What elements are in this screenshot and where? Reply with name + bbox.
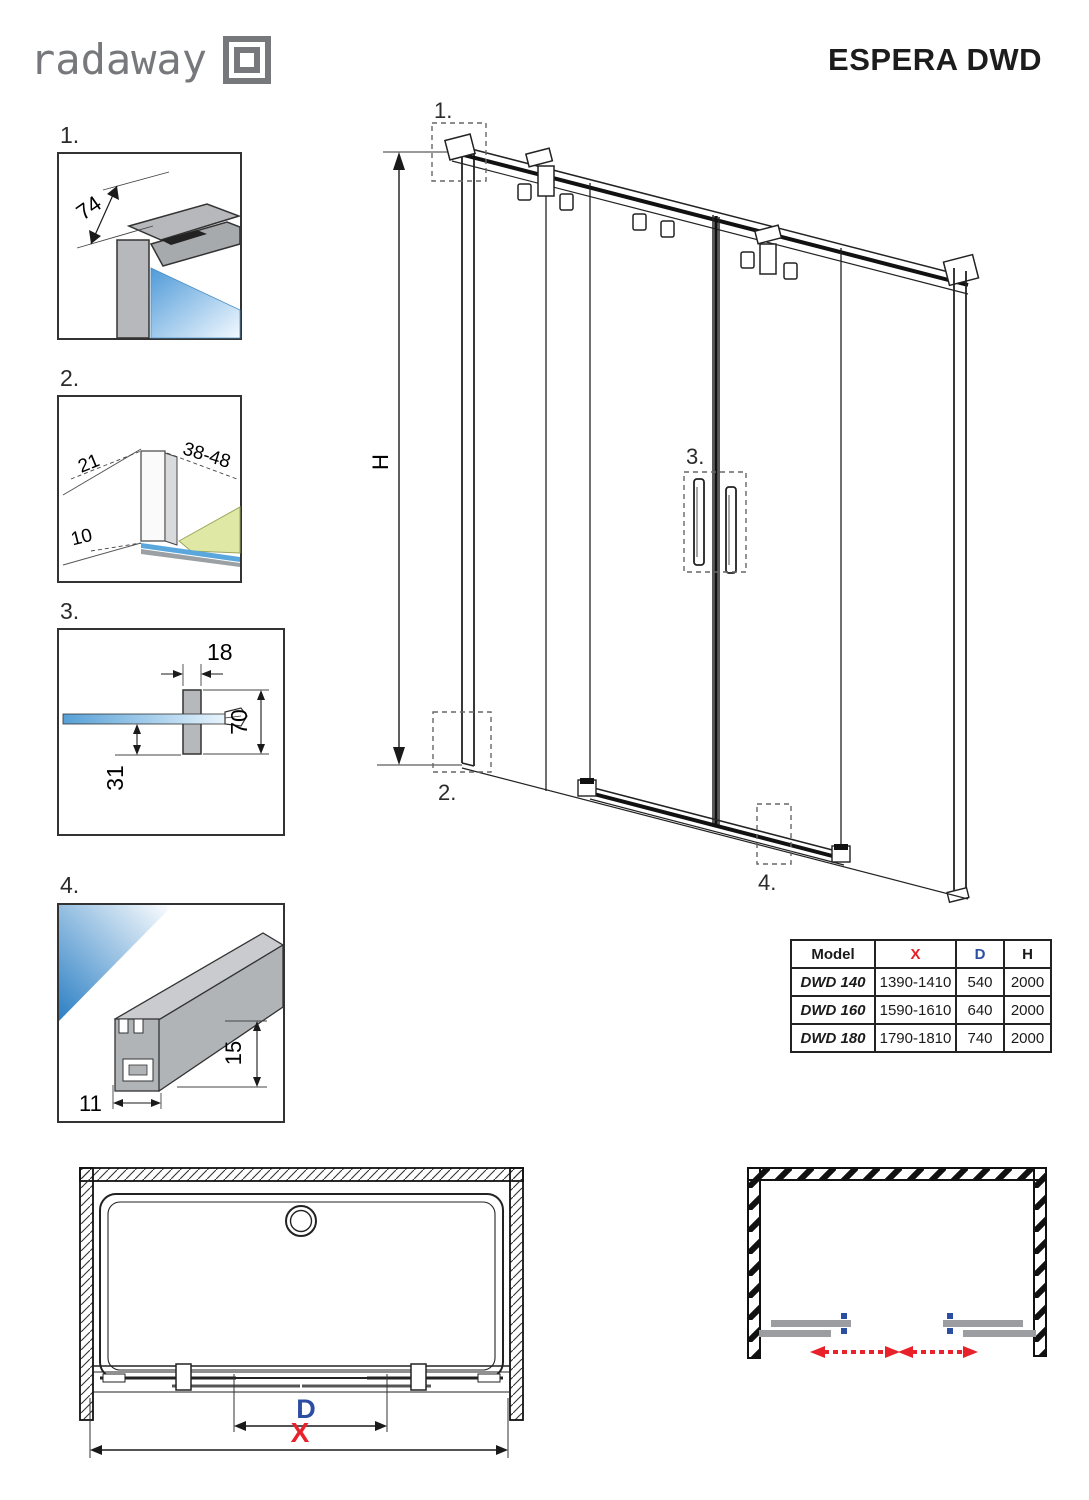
rail-end-cap-right (943, 255, 978, 286)
table-row: DWD 160 1590-1610 640 2000 (791, 996, 1051, 1024)
cell-x: 1590-1610 (875, 996, 956, 1024)
handle-markers (841, 1313, 953, 1334)
cell-d: 540 (956, 968, 1004, 996)
callout-3-label: 3. (686, 444, 704, 469)
callout-2-label: 2. (438, 780, 456, 805)
callout-4-label: 4. (758, 870, 776, 895)
sliding-schematic (735, 1150, 1055, 1380)
wall-top (748, 1168, 1046, 1180)
detail-3-label: 3. (60, 598, 79, 625)
detail-3-handle-section: 18 70 31 (57, 628, 285, 836)
cell-x: 1790-1810 (875, 1024, 956, 1052)
cell-h: 2000 (1004, 996, 1051, 1024)
shower-tray (100, 1194, 503, 1378)
dim-11: 11 (79, 1091, 102, 1116)
brand-logo: radaway (30, 36, 271, 84)
detail-4-bottom-rail-section: 11 15 (57, 903, 285, 1123)
wall-profile-front (141, 451, 165, 541)
callout-box-4 (757, 804, 791, 864)
col-header-h: H (1004, 940, 1051, 968)
dim-70: 70 (226, 709, 252, 735)
detail-4-label: 4. (60, 872, 79, 899)
brand-logo-text: radaway (30, 39, 207, 81)
brand-logo-square-icon (223, 36, 271, 84)
wall-left (748, 1168, 760, 1358)
dim-18: 18 (207, 639, 233, 665)
dim-h: H (370, 454, 393, 470)
model-spec-table: Model X D H DWD 140 1390-1410 540 2000 D… (790, 939, 1052, 1053)
wall-right (510, 1168, 523, 1420)
slide-direction-arrows (810, 1346, 978, 1358)
glass-pane (63, 714, 225, 724)
dim-31: 31 (102, 765, 128, 791)
cell-h: 2000 (1004, 1024, 1051, 1052)
col-header-d: D (956, 940, 1004, 968)
roller-hanger-2 (755, 225, 781, 274)
main-assembly-drawing: H (370, 95, 1020, 905)
cell-h: 2000 (1004, 968, 1051, 996)
cell-model: DWD 160 (791, 996, 875, 1024)
dim-15: 15 (221, 1041, 246, 1065)
wall-profile-side (165, 453, 177, 545)
cell-model: DWD 140 (791, 968, 875, 996)
cell-x: 1390-1410 (875, 968, 956, 996)
spec-sheet-page: radaway ESPERA DWD 1. 74 2. (0, 0, 1089, 1500)
table-row: DWD 140 1390-1410 540 2000 (791, 968, 1051, 996)
dim-x-label: X (291, 1417, 310, 1448)
detail-2-label: 2. (60, 365, 79, 392)
callout-1-label: 1. (434, 98, 452, 123)
wall-profile (117, 240, 149, 338)
detail-1-top-rail-section: 74 (57, 152, 242, 340)
detail-2-wall-profile: 21 38-48 10 (57, 395, 242, 583)
wall-right (1034, 1168, 1046, 1356)
wall-left (80, 1168, 93, 1420)
top-view-drawing: D X (60, 1150, 540, 1490)
door-panels (759, 1320, 1036, 1337)
product-title: ESPERA DWD (760, 42, 1042, 78)
col-header-model: Model (791, 940, 875, 968)
detail-1-label: 1. (60, 122, 79, 149)
wall-top (80, 1168, 523, 1181)
cell-d: 640 (956, 996, 1004, 1024)
cell-model: DWD 180 (791, 1024, 875, 1052)
table-row: DWD 180 1790-1810 740 2000 (791, 1024, 1051, 1052)
cell-d: 740 (956, 1024, 1004, 1052)
col-header-x: X (875, 940, 956, 968)
